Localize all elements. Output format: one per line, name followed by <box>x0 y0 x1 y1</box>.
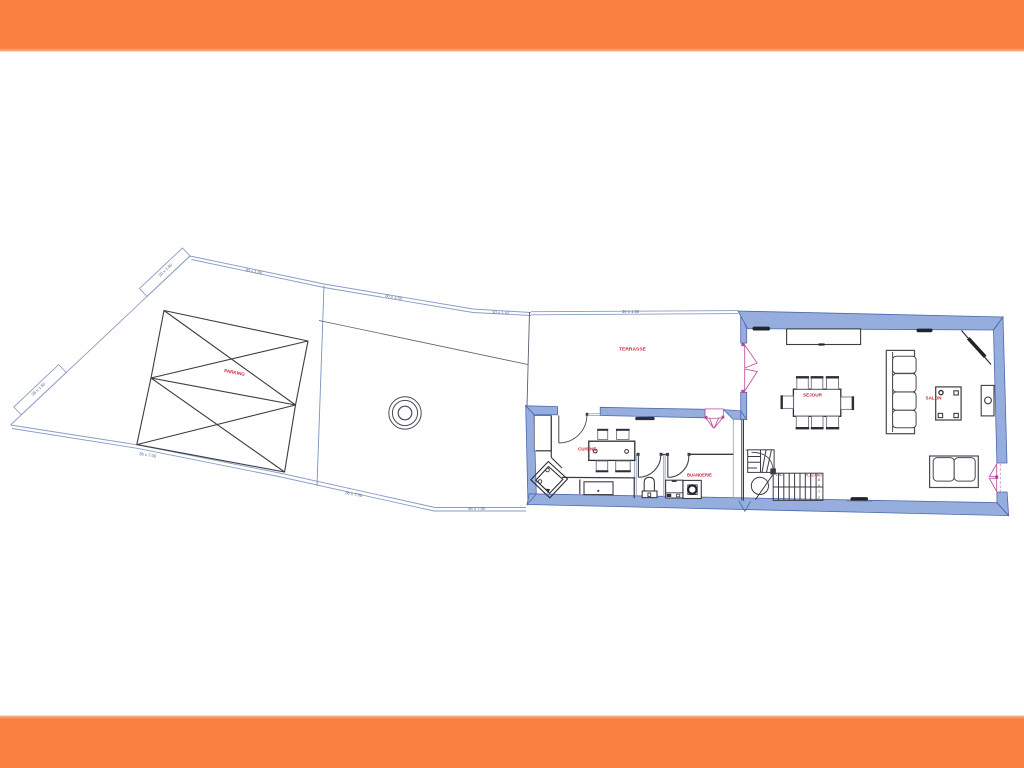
svg-text:.2: .2 <box>817 496 820 500</box>
svg-text:.5: .5 <box>817 484 820 488</box>
svg-text:.8: .8 <box>817 478 820 482</box>
svg-text:SEJOUR: SEJOUR <box>803 392 823 397</box>
svg-text:BUANDERIE: BUANDERIE <box>687 473 712 478</box>
svg-text:1.80: 1.80 <box>776 473 783 477</box>
svg-text:30 x 1.50: 30 x 1.50 <box>622 309 640 314</box>
svg-text:36 x 7.00: 36 x 7.00 <box>468 506 486 511</box>
svg-text:SALON: SALON <box>926 395 943 400</box>
svg-text:CUISINE: CUISINE <box>578 447 596 452</box>
svg-text:30 x 1.52: 30 x 1.52 <box>492 310 510 316</box>
svg-text:.7: .7 <box>817 490 820 494</box>
svg-text:TERRASSE: TERRASSE <box>619 347 647 353</box>
svg-text:PLACARD: PLACARD <box>805 473 822 477</box>
